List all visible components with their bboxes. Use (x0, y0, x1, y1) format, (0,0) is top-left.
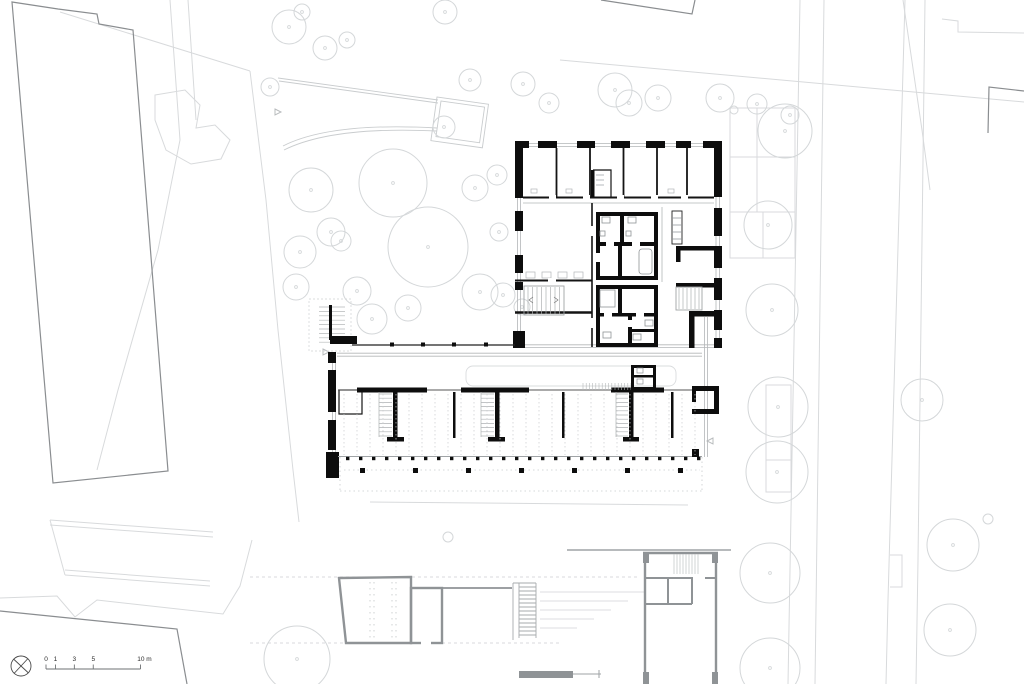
basement-room (643, 553, 718, 684)
ramp-lines (540, 592, 645, 628)
basement-wall-bar (519, 671, 573, 678)
room-partitions-top (523, 148, 714, 198)
road-edge (903, 0, 930, 190)
shelf-unit (672, 211, 682, 244)
trees-layer (261, 0, 993, 684)
deck-columns-row1 (346, 457, 700, 460)
site-context-layer (0, 0, 1024, 684)
main-building-plan (309, 141, 722, 491)
plan-sheet: 0 1 3 5 10 m (0, 0, 1024, 684)
neighbor-building-topright (988, 87, 1024, 133)
kerb-line (0, 540, 252, 617)
wing-small-room (339, 390, 362, 414)
wing-right-room (692, 386, 719, 457)
exterior-stair-hatch (674, 554, 698, 574)
scale-label-10m: 10 m (137, 656, 151, 663)
road-edge (815, 0, 824, 684)
scale-bar-graphics (46, 665, 141, 670)
door-gap (421, 640, 431, 645)
neighbor-building-top (601, 0, 695, 14)
deck-dotted-boundary (340, 457, 702, 491)
scale-label-3: 3 (73, 656, 77, 663)
ramp-inner (436, 101, 485, 143)
marker-triangle (275, 109, 281, 115)
road-notch (890, 555, 902, 587)
bathroom-core-2 (596, 285, 658, 347)
planting-bed (766, 385, 791, 492)
bathroom-core-1 (596, 212, 658, 280)
wing-structure (338, 365, 719, 491)
shelf-ticks (370, 582, 396, 640)
scale-label-5: 5 (91, 656, 95, 663)
path-line (188, 0, 196, 120)
north-orientation-symbol (11, 656, 31, 676)
basement-stair (513, 583, 536, 640)
stair-core-left (524, 286, 564, 315)
hall-walls (515, 203, 662, 347)
neighbor-building-left (12, 2, 168, 483)
plot-corner (942, 19, 1024, 33)
road-edge (788, 0, 800, 684)
floor-plan-drawing (0, 0, 1024, 684)
secondary-plan-left (339, 577, 512, 645)
scale-label-1: 1 (54, 656, 58, 663)
path-line (97, 0, 180, 470)
garden-path (278, 78, 488, 150)
ground-line (370, 502, 688, 505)
retaining-walls (50, 520, 213, 586)
garden-boundary-line (250, 71, 299, 522)
hedge-outline (155, 90, 230, 164)
deck-columns-row2 (360, 468, 683, 473)
secondary-plan-center (513, 550, 731, 684)
exterior-stair (309, 299, 357, 351)
scale-label-0: 0 (44, 656, 48, 663)
closet (591, 170, 611, 197)
road-edge (916, 0, 925, 684)
parking-bays (730, 108, 795, 258)
fence-line (60, 12, 250, 71)
